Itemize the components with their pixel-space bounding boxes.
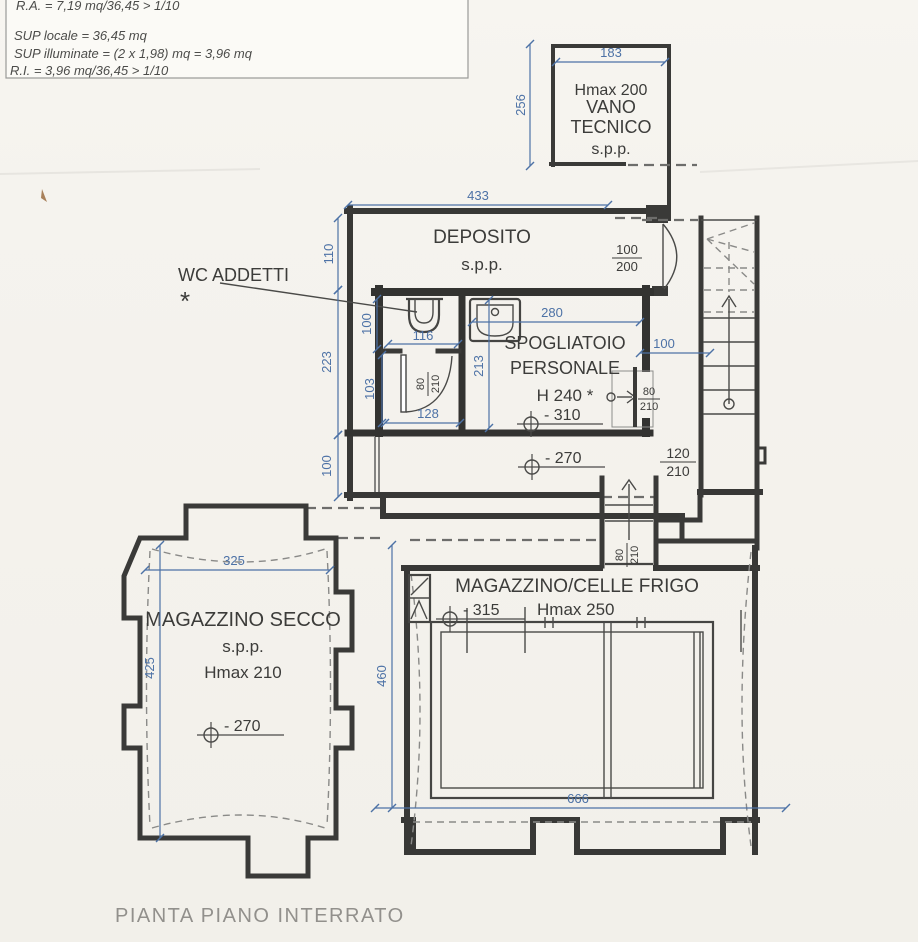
- drawing-title: PIANTA PIANO INTERRATO: [115, 905, 405, 927]
- note-asterisk: *: [180, 286, 190, 316]
- dim-value: 100: [319, 455, 334, 477]
- room-height-label: H 240 *: [537, 386, 594, 405]
- room-name: MAGAZZINO/CELLE FRIGO: [455, 576, 699, 597]
- door-height-value: 210: [640, 401, 658, 413]
- dim-value: 325: [223, 553, 245, 568]
- dim-value: 100: [653, 336, 675, 351]
- notes-line-2: SUP locale = 36,45 mq: [14, 28, 148, 43]
- level-value: - 270: [545, 450, 582, 467]
- door-width-value: 100: [616, 242, 638, 257]
- dim-value: 128: [417, 406, 439, 421]
- door-height-value: 210: [430, 375, 442, 393]
- dim-value: 116: [413, 328, 434, 343]
- room-name: WC ADDETTI: [178, 265, 289, 285]
- room-spp-label: s.p.p.: [222, 637, 264, 656]
- room-height-label: Hmax 250: [537, 600, 614, 619]
- dim-value: 433: [467, 188, 489, 203]
- notes-line-1: R.A. = 7,19 mq/36,45 > 1/10: [16, 0, 180, 13]
- dim-value: 100: [359, 313, 374, 335]
- room-name: DEPOSITO: [433, 227, 531, 248]
- room-spp-label: s.p.p.: [591, 141, 630, 158]
- door-width-value: 120: [666, 445, 690, 461]
- room-name: TECNICO: [571, 117, 652, 137]
- room-name: VANO: [586, 97, 636, 117]
- door-width-value: 80: [643, 386, 655, 398]
- dim-value: 213: [471, 355, 486, 377]
- dim-value: 110: [321, 244, 336, 265]
- floor-plan-drawing: R.A. = 7,19 mq/36,45 > 1/10 SUP locale =…: [0, 0, 918, 942]
- door-leaf: [401, 355, 406, 412]
- room-name: MAGAZZINO SECCO: [145, 609, 341, 631]
- level-value: - 315: [463, 602, 500, 619]
- door-width-value: 80: [614, 549, 626, 561]
- room-name: PERSONALE: [510, 358, 620, 378]
- notes-line-3: SUP illuminate = (2 x 1,98) mq = 3,96 mq: [14, 46, 253, 61]
- room-spp-label: s.p.p.: [461, 255, 503, 274]
- door-width-value: 80: [415, 378, 427, 390]
- dim-value: 460: [374, 665, 389, 687]
- room-height-label: Hmax 210: [204, 663, 281, 682]
- notes-line-4: R.I. = 3,96 mq/36,45 > 1/10: [10, 63, 169, 78]
- room-name: SPOGLIATOIO: [504, 333, 625, 353]
- level-value: - 270: [224, 718, 261, 735]
- dim-value: 425: [142, 657, 157, 679]
- dim-value: 103: [362, 378, 377, 400]
- dim-value: 223: [319, 351, 334, 373]
- dim-value: 183: [600, 45, 622, 60]
- door-size-label: 100200: [612, 242, 642, 274]
- door-height-value: 200: [616, 259, 638, 274]
- door-leaf: [633, 367, 637, 427]
- dim-value: 256: [513, 94, 528, 116]
- scanned-floor-plan-page: R.A. = 7,19 mq/36,45 > 1/10 SUP locale =…: [0, 0, 918, 942]
- notes-box: R.A. = 7,19 mq/36,45 > 1/10 SUP locale =…: [6, 0, 468, 78]
- level-value: - 310: [544, 407, 581, 424]
- door-height-value: 210: [629, 546, 641, 564]
- dim-value: 280: [541, 305, 563, 320]
- dim-value: 666: [567, 791, 589, 806]
- door-height-value: 210: [666, 463, 690, 479]
